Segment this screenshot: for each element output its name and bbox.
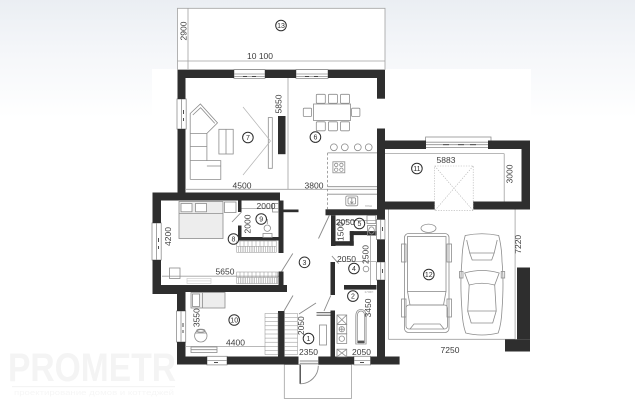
- svg-text:2050: 2050: [296, 316, 306, 335]
- svg-text:2350: 2350: [299, 347, 318, 357]
- svg-text:проектирование домов и коттедж: проектирование домов и коттеджей: [14, 389, 174, 397]
- svg-text:7: 7: [246, 135, 250, 142]
- svg-text:10: 10: [230, 318, 238, 325]
- svg-text:4: 4: [352, 266, 356, 273]
- svg-text:клмн: клмн: [365, 290, 374, 294]
- svg-text:2000: 2000: [243, 214, 253, 233]
- svg-text:2050: 2050: [337, 254, 356, 264]
- svg-text:1: 1: [307, 336, 311, 343]
- svg-text:12: 12: [425, 272, 433, 279]
- svg-text:4200: 4200: [163, 227, 173, 246]
- svg-text:2000: 2000: [257, 201, 276, 211]
- svg-text:3000: 3000: [505, 164, 515, 183]
- svg-text:5850: 5850: [274, 94, 284, 113]
- svg-text:1500: 1500: [335, 222, 345, 241]
- svg-text:3: 3: [303, 260, 307, 267]
- svg-text:5650: 5650: [216, 267, 235, 277]
- svg-text:PROMETR: PROMETR: [8, 346, 176, 390]
- svg-text:9: 9: [259, 217, 263, 224]
- svg-text:6: 6: [313, 135, 317, 142]
- svg-text:2: 2: [351, 294, 355, 301]
- svg-text:2900: 2900: [178, 21, 188, 40]
- svg-text:3550: 3550: [192, 308, 202, 327]
- svg-text:13: 13: [277, 23, 285, 30]
- svg-text:пнш: пнш: [365, 204, 372, 208]
- svg-text:4400: 4400: [226, 338, 245, 348]
- svg-text:3450: 3450: [363, 298, 373, 317]
- svg-text:7250: 7250: [441, 345, 460, 355]
- svg-text:3800: 3800: [305, 181, 324, 191]
- svg-text:5: 5: [357, 221, 361, 228]
- svg-text:2500: 2500: [360, 245, 370, 264]
- svg-text:7220: 7220: [513, 235, 523, 254]
- svg-text:4500: 4500: [233, 181, 252, 191]
- svg-text:2050: 2050: [352, 347, 371, 357]
- svg-text:5883: 5883: [437, 155, 456, 165]
- svg-text:8: 8: [232, 237, 236, 244]
- svg-text:11: 11: [413, 166, 420, 173]
- svg-text:10 100: 10 100: [247, 51, 273, 61]
